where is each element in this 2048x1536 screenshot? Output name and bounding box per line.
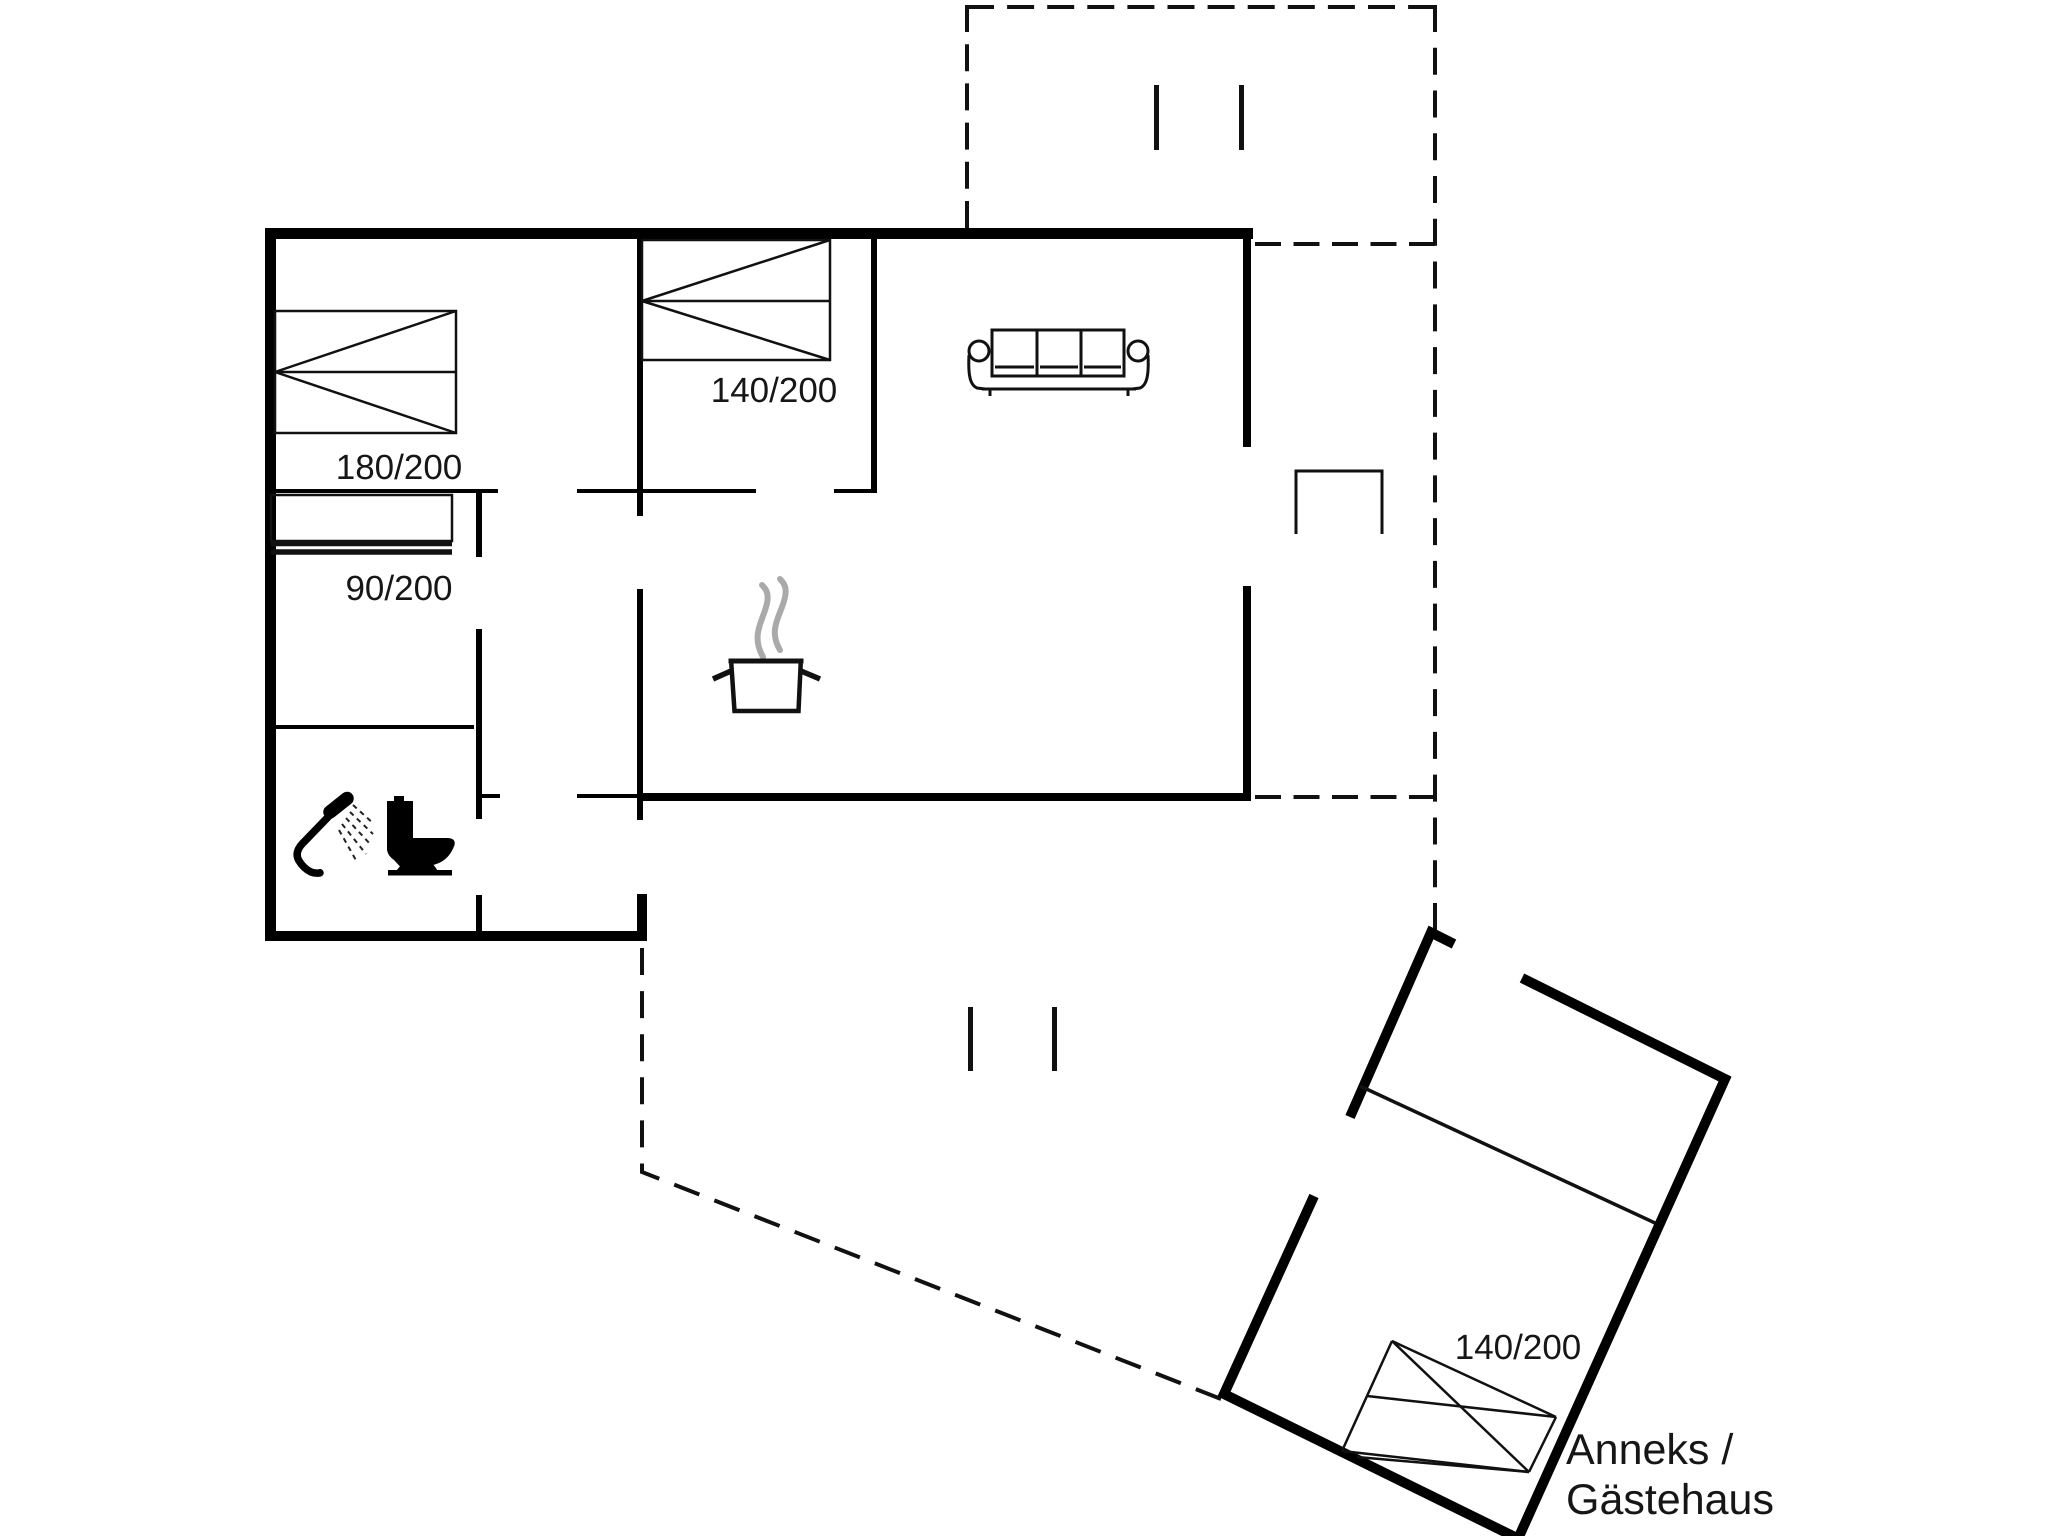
svg-text:Anneks /: Anneks / bbox=[1566, 1426, 1733, 1474]
svg-text:90/200: 90/200 bbox=[345, 569, 452, 608]
svg-text:140/200: 140/200 bbox=[1455, 1328, 1582, 1367]
svg-text:Gästehaus: Gästehaus bbox=[1566, 1476, 1774, 1524]
svg-text:140/200: 140/200 bbox=[711, 371, 838, 410]
svg-text:180/200: 180/200 bbox=[336, 448, 463, 487]
